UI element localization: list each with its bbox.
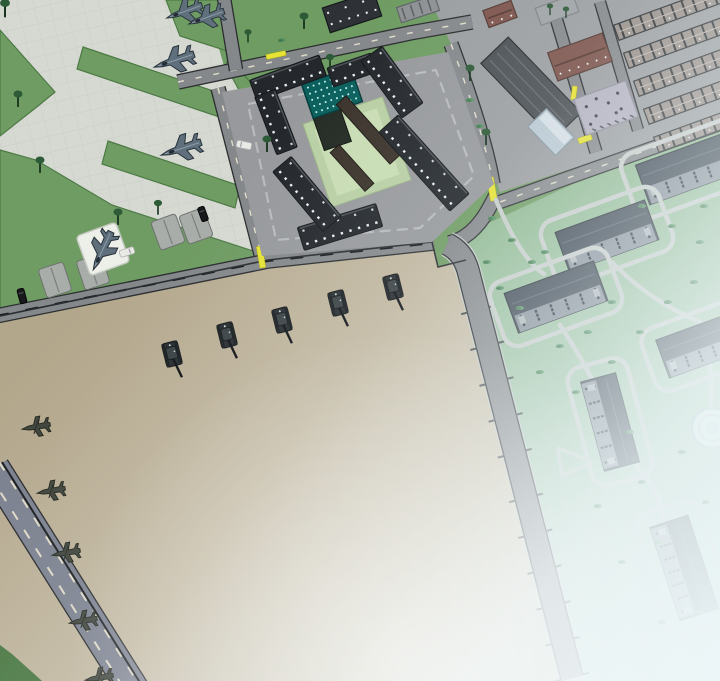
haze-bottom-glow [0, 0, 720, 681]
game-map[interactable] [0, 0, 720, 681]
game-screenshot [0, 0, 720, 681]
fog-layer [0, 0, 720, 681]
